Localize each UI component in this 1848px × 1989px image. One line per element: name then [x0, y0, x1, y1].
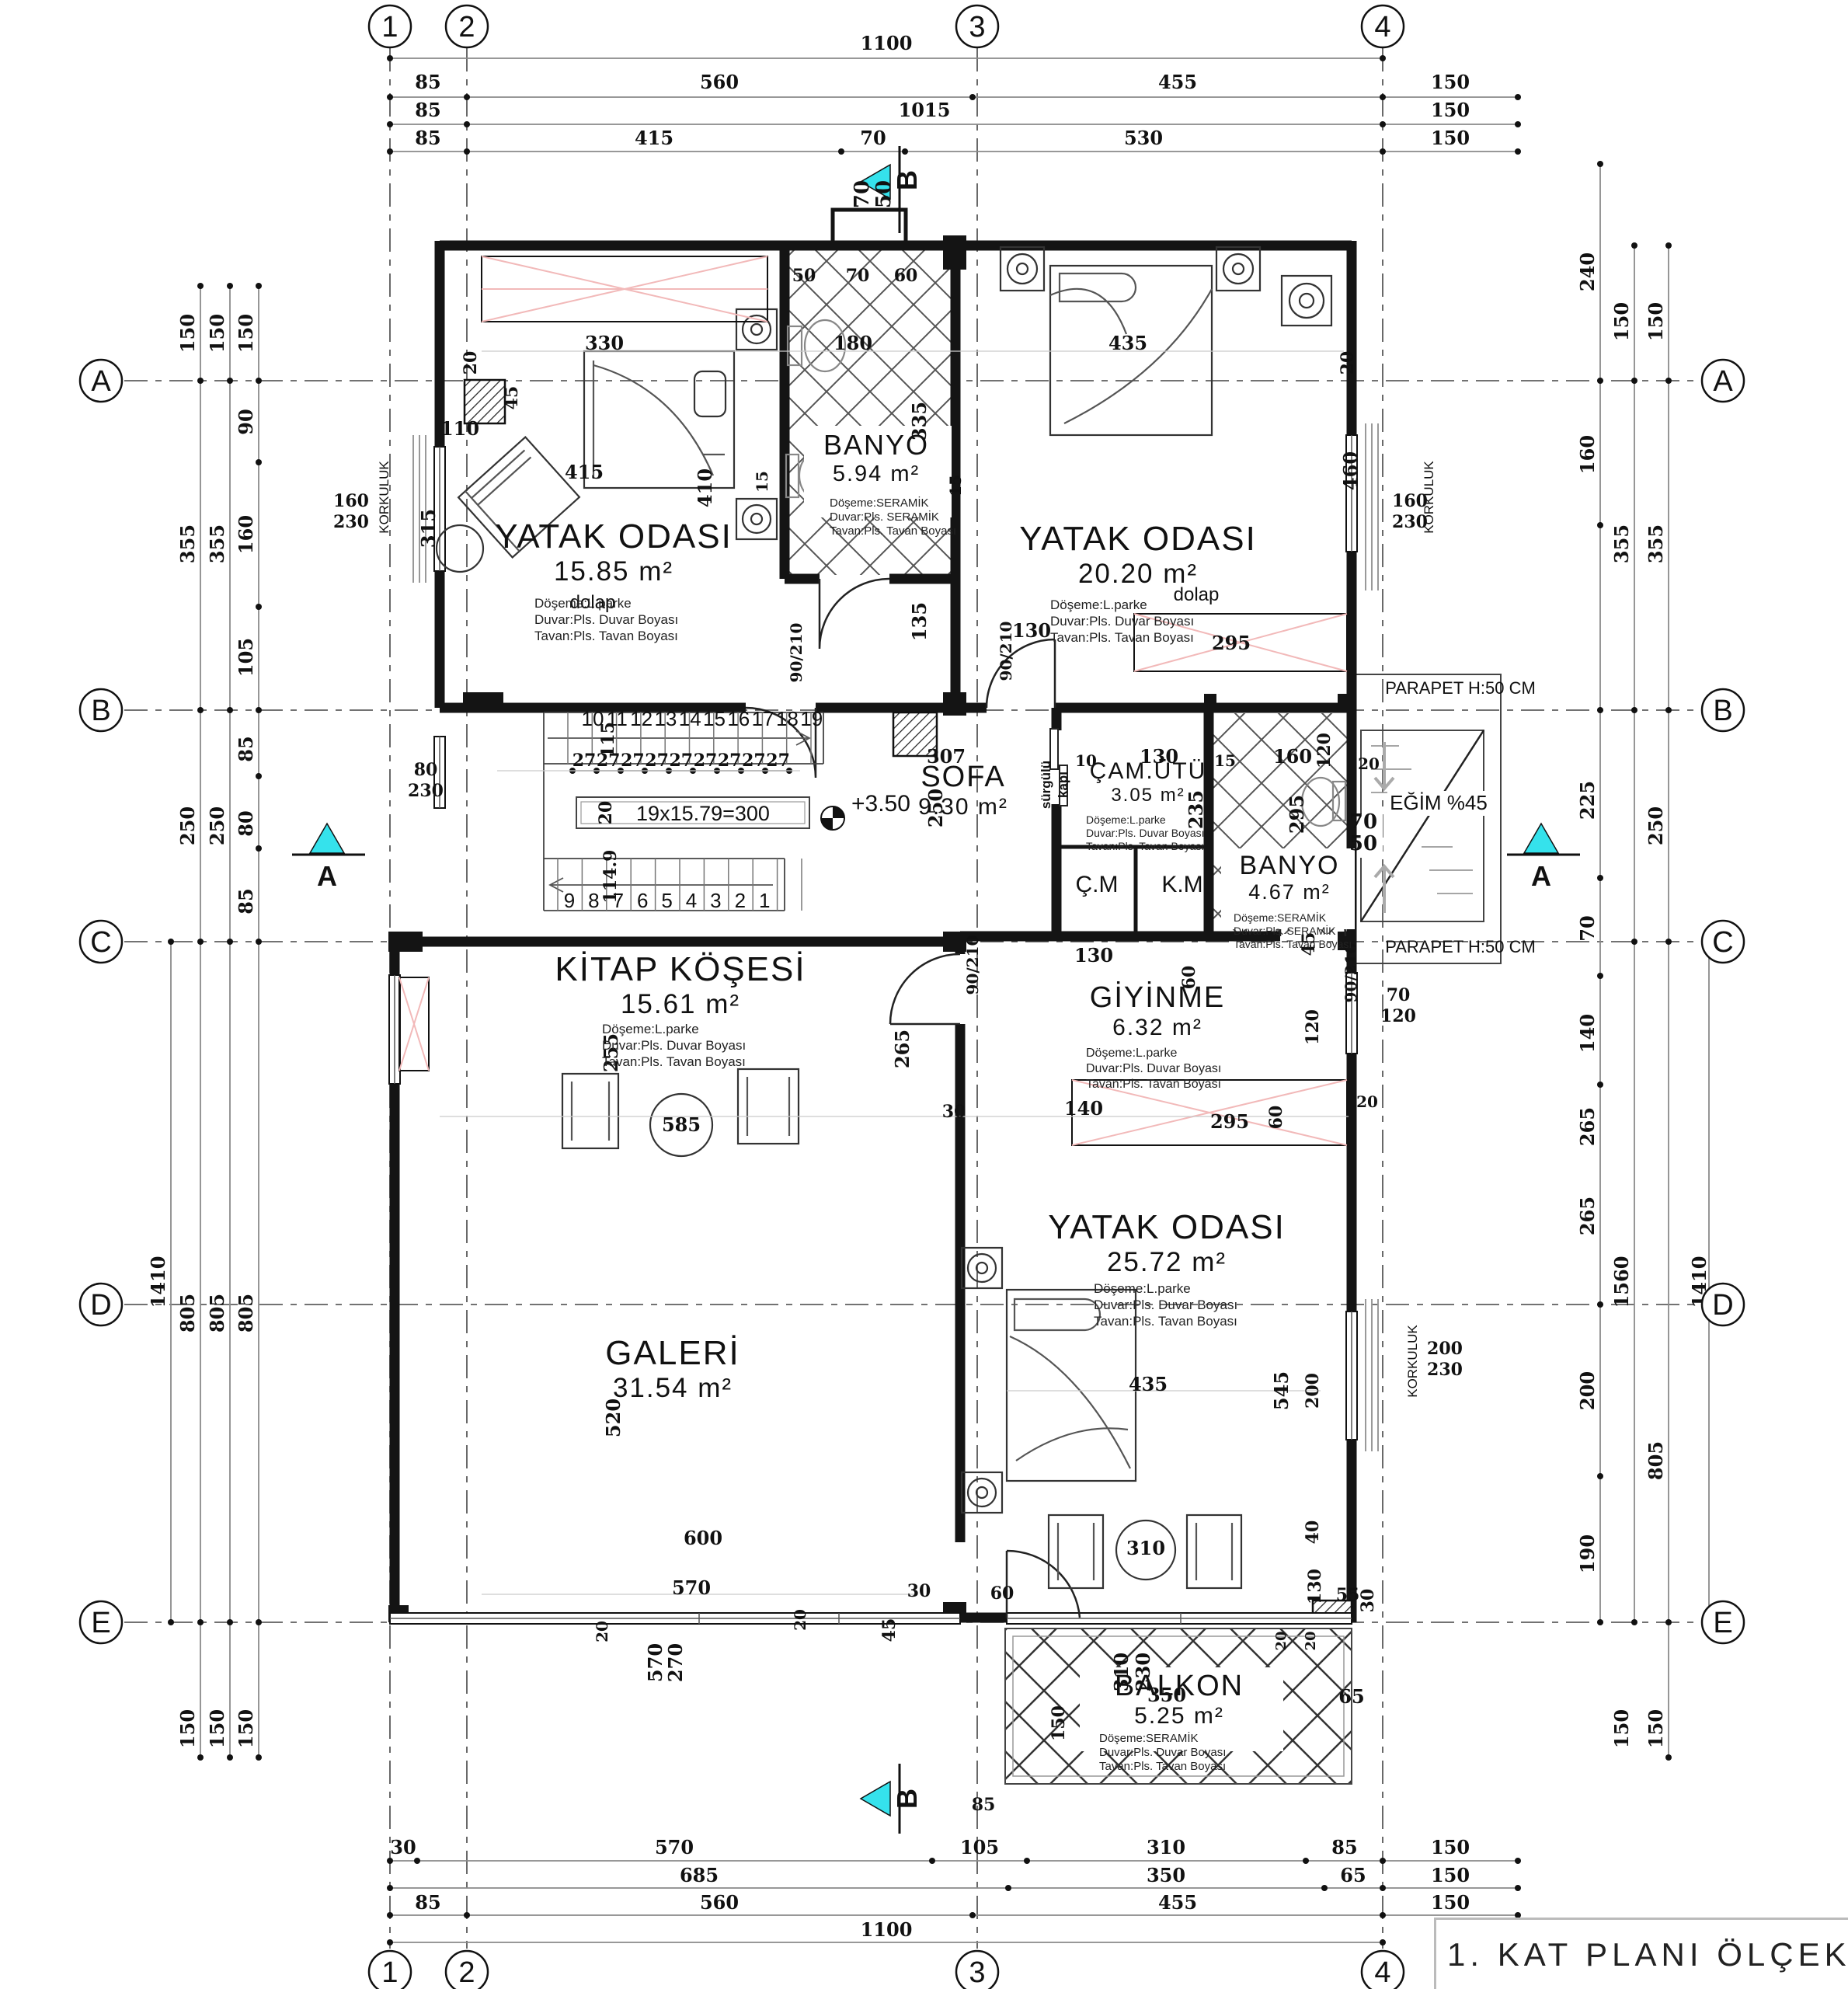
dim-tick [1515, 148, 1521, 155]
dim-label: 20 [1358, 754, 1380, 773]
dim-tick [387, 55, 393, 61]
dim-tick [464, 94, 470, 100]
grid-bubble-label: 1 [381, 11, 398, 44]
dim-label: 85 [415, 127, 440, 149]
stair-step-number: 18 [776, 707, 799, 730]
table-dim: 310 [1126, 1537, 1165, 1559]
dim-label: 150 [1431, 1891, 1470, 1914]
dim-label: 20 [791, 1609, 809, 1631]
armchair [1187, 1515, 1241, 1588]
stair-step-number: 19 [800, 707, 823, 730]
room-notes: Duvar:Pls. Duvar Boyası [1099, 1746, 1226, 1759]
dim-label: 1560 [1610, 1256, 1633, 1308]
dim-tick [168, 1619, 174, 1625]
dim-tick [1631, 378, 1637, 384]
room-area: 25.72 m² [1107, 1247, 1227, 1277]
dim-tick [1380, 55, 1386, 61]
dim-label: 70 [1387, 985, 1411, 1005]
dim-label: 230 [1427, 1360, 1463, 1380]
grid-bubble-label: C [1712, 926, 1733, 959]
dim-label: 315 [417, 509, 440, 548]
dim-tick [197, 1619, 204, 1625]
room-notes: Duvar:Pls. SERAMİK [1234, 924, 1336, 937]
dim-label: 150 [206, 1709, 228, 1748]
stair-tread-dim: 27 [669, 751, 693, 771]
dim-tick [1665, 1754, 1672, 1761]
section-letter-a: A [1531, 860, 1551, 892]
dim-label: 20 [1338, 351, 1358, 375]
stair-step-number: 10 [582, 707, 604, 730]
dim-label: 150 [206, 314, 228, 353]
stair-step-number: 16 [727, 707, 750, 730]
door-kitap [890, 954, 960, 1024]
dim-tick [1303, 1858, 1309, 1864]
dim-tick [1665, 939, 1672, 945]
dim-tick [1005, 1885, 1011, 1891]
dim-label: 15 [946, 475, 965, 496]
room-notes: Döşeme:L.parke [1086, 813, 1166, 826]
dim-tick [256, 1754, 262, 1761]
dim-label: 45 [879, 1618, 900, 1642]
stair-step-number: 8 [588, 889, 599, 912]
dim-tick [1631, 1619, 1637, 1625]
stair-step-number: 2 [735, 889, 746, 912]
dim-tick [387, 1939, 393, 1945]
dim-tick [1665, 242, 1672, 249]
dim-tick [197, 939, 204, 945]
dim-tick [256, 1619, 262, 1625]
stair-step-number: 17 [752, 707, 774, 730]
room-notes: Duvar:Pls. Duvar Boyası [1086, 827, 1205, 839]
stair-tread-dim: 27 [597, 751, 621, 771]
room-notes: Döşeme:L.parke [1086, 1047, 1177, 1060]
dim-tick [464, 1912, 470, 1918]
dim-tick [227, 283, 233, 289]
dim-label: 20 [1356, 1092, 1378, 1111]
room-name: ÇAM.ÜTÜ [1090, 758, 1207, 784]
dim-label: 160 [1273, 745, 1312, 768]
dim-label: 130 [1305, 1569, 1325, 1604]
dim-label: 160 [1576, 435, 1599, 474]
dim-tick [1380, 1858, 1386, 1864]
room-notes: Duvar:Pls. Duvar Boyası [1094, 1298, 1237, 1312]
room-notes: Döşeme:L.parke [1094, 1281, 1191, 1296]
dim-tick [1597, 973, 1603, 979]
stair-tread-dim: 27 [572, 751, 597, 771]
dim-label: 120 [1303, 1009, 1323, 1045]
dim-label: 150 [176, 1709, 199, 1748]
dim-label: 70 [860, 127, 886, 149]
dim-label: 65 [1340, 1864, 1366, 1886]
dim-tick [1380, 94, 1386, 100]
dim-label: 265 [1576, 1107, 1599, 1146]
stair-step-number: 3 [710, 889, 721, 912]
dim-label: 545 [1270, 1371, 1293, 1410]
table-dim: 585 [662, 1113, 701, 1136]
room-notes: Tavan:Pls. Tavan Boyası [1086, 1078, 1221, 1091]
dim-label: 20 [596, 801, 616, 825]
room-name: YATAK ODASI [495, 517, 733, 556]
dim-tick [227, 939, 233, 945]
section-marker-a-left [292, 824, 365, 855]
dim-label: 600 [684, 1527, 722, 1549]
dim-label: 20 [1273, 1631, 1289, 1650]
room-notes: Tavan:Pls. Tavan Boyası [1086, 840, 1204, 852]
dim-label: 30 [1358, 1589, 1378, 1613]
dim-label: 85 [235, 736, 257, 761]
dim-tick [464, 148, 470, 155]
dim-label: 80 [414, 760, 438, 780]
dim-label: 150 [1049, 1705, 1069, 1741]
dim-label: 530 [1124, 127, 1163, 149]
dim-label: 200 [1576, 1371, 1599, 1410]
korkuluk-label: KORKULUK [377, 461, 392, 534]
dim-label: 55 [1336, 1585, 1360, 1605]
dim-label: 250 [1644, 806, 1667, 845]
dim-label: 85 [415, 71, 440, 93]
room-notes: Tavan:Pls. Tavan Boyası [1099, 1760, 1226, 1773]
room-area: 5.25 m² [1134, 1703, 1224, 1729]
dim-label: 235 [1185, 790, 1207, 829]
dim-label: 160 [333, 491, 369, 511]
dim-label: 50 [792, 266, 816, 286]
dim-label: 455 [1158, 71, 1197, 93]
dim-label: 200 [1427, 1339, 1463, 1359]
room-name: KİTAP KÖŞESİ [555, 950, 806, 988]
dim-tick [1665, 707, 1672, 713]
room-name: YATAK ODASI [1048, 1208, 1286, 1246]
grid-bubble-label: 1 [381, 1956, 398, 1989]
dim-tick [1597, 378, 1603, 384]
stair-step-number: 7 [613, 889, 624, 912]
dim-label: 1100 [861, 1918, 913, 1941]
dim-label: 265 [1576, 1197, 1599, 1235]
dim-label: 180 [834, 332, 872, 354]
room-notes: Döşeme:L.parke [602, 1022, 699, 1036]
dim-label: 110 [440, 417, 479, 440]
dim-tick [256, 283, 262, 289]
room-label-cm: Ç.M [1076, 872, 1119, 897]
room-notes: Tavan:Pls. Tavan Boyası [534, 629, 678, 643]
dim-label: 240 [1576, 253, 1599, 291]
dim-label: 85 [415, 99, 440, 121]
dim-label: 685 [680, 1864, 719, 1886]
dim-label: sürgülü [1039, 761, 1053, 809]
room-notes: Döşeme:L.parke [534, 596, 632, 611]
nightstand [1001, 247, 1044, 291]
dim-tick [227, 1754, 233, 1761]
room-name: BALKON [1115, 1670, 1244, 1702]
roof-slope-label: EĞİM %45 [1390, 791, 1488, 814]
room-notes: Duvar:Pls. Duvar Boyası [1050, 614, 1194, 629]
room-area: 9.30 m² [918, 794, 1008, 820]
grid-bubble-label: 3 [969, 1956, 985, 1989]
dim-tick [929, 1858, 935, 1864]
stair-tread-dim: 27 [645, 751, 669, 771]
dim-label: 120 [1380, 1006, 1416, 1026]
room-name: SOFA [921, 761, 1005, 793]
grid-bubble-label: 3 [969, 11, 985, 44]
dim-label: 130 [1012, 619, 1051, 642]
dim-label: 190 [1576, 1534, 1599, 1573]
dim-label: 90/210 [787, 623, 806, 683]
dim-tick [256, 845, 262, 852]
dim-label: 310 [1147, 1836, 1185, 1858]
room-notes: Tavan:Pls. Tavan Boyası [602, 1054, 746, 1069]
dim-tick [1597, 1619, 1603, 1625]
dim-label: 140 [1576, 1014, 1599, 1053]
dim-tick [969, 1912, 976, 1918]
dim-tick [1024, 1858, 1030, 1864]
section-letter-b: B [891, 170, 923, 190]
parapet-label: PARAPET H:50 CM [1385, 678, 1536, 698]
dim-label: 270 [664, 1643, 687, 1682]
door-balcony [1007, 1551, 1080, 1618]
dim-label: 200 [1303, 1373, 1323, 1409]
dim-tick [1515, 1885, 1521, 1891]
section-letter-b: B [891, 1789, 923, 1809]
dim-tick [387, 121, 393, 127]
room-notes: Döşeme:SERAMİK [1234, 911, 1327, 924]
dim-label: 415 [635, 127, 673, 149]
dim-tick [1597, 875, 1603, 881]
room-notes: Döşeme:SERAMİK [1099, 1731, 1199, 1745]
bed [584, 351, 734, 488]
dim-label: 20 [593, 1621, 611, 1642]
dim-label: 355 [206, 524, 228, 563]
korkuluk-label: KORKULUK [1422, 461, 1436, 534]
grid-bubble-label: D [90, 1289, 111, 1322]
stair-step-number: 15 [703, 707, 726, 730]
dim-label: 85 [235, 888, 257, 914]
room-label-km: K.M [1161, 872, 1202, 897]
dim-tick [1380, 1885, 1386, 1891]
dim-tick [1515, 94, 1521, 100]
dim-tick [1515, 1858, 1521, 1864]
stair-step-number: 4 [686, 889, 697, 912]
room-notes: Döşeme:SERAMİK [830, 496, 929, 510]
dim-tick [1631, 242, 1637, 249]
dim-tick [1597, 522, 1603, 528]
grid-bubble-label: A [1713, 365, 1733, 398]
dim-label: 330 [585, 332, 624, 354]
dim-tick [414, 1858, 420, 1864]
dim-label: 805 [1644, 1441, 1667, 1480]
dim-label: 130 [1074, 944, 1113, 967]
dim-label: 70 [1576, 915, 1599, 941]
dim-tick [1380, 148, 1386, 155]
dim-label: 250 [176, 806, 199, 845]
dim-label: 570 [644, 1643, 666, 1682]
dim-label: 85 [1331, 1836, 1357, 1858]
room-notes: Tavan:Pls. Tavan Boyası [830, 524, 956, 538]
dim-label: 85 [415, 1891, 440, 1914]
korkuluk-label: KORKULUK [1405, 1325, 1420, 1398]
room-notes: Tavan:Pls. Tavan Boyası [1234, 938, 1352, 950]
dim-tick [1380, 1912, 1386, 1918]
dim-tick [168, 939, 174, 945]
stair-step-number: 6 [637, 889, 648, 912]
grid-bubble-label: B [91, 695, 110, 727]
dim-tick [1597, 161, 1603, 167]
level-marker [821, 806, 844, 830]
dim-label: 295 [1210, 1110, 1249, 1133]
nightstand [1216, 247, 1260, 291]
dim-label: 520 [602, 1399, 625, 1437]
stair-step-number: 5 [661, 889, 672, 912]
dim-label: 70 [846, 266, 870, 286]
dim-label: 1100 [861, 32, 913, 54]
dim-label: 295 [1212, 632, 1251, 654]
dim-label: 140 [1064, 1097, 1103, 1120]
room-area: 15.61 m² [621, 989, 740, 1019]
room-notes: Tavan:Pls. Tavan Boyası [1094, 1314, 1237, 1329]
dim-tick [197, 378, 204, 384]
dim-tick [902, 148, 908, 155]
dim-label: 150 [176, 314, 199, 353]
stair-tread-dim: 27 [766, 751, 790, 771]
dim-tick [256, 773, 262, 779]
dim-label: 1410 [147, 1256, 169, 1308]
dim-label: 265 [891, 1029, 914, 1068]
stair-step-number: 13 [654, 707, 677, 730]
dim-label: 90/210 [1342, 943, 1360, 1003]
dim-label: 80 [235, 810, 257, 836]
room-area: 6.32 m² [1112, 1015, 1202, 1040]
dim-label: 105 [235, 638, 257, 677]
dim-label: 150 [1431, 71, 1470, 93]
dim-tick [197, 1754, 204, 1761]
dim-tick [1380, 121, 1386, 127]
room-area: 31.54 m² [613, 1373, 733, 1403]
grid-bubble-label: D [1712, 1289, 1733, 1322]
dim-label: 60 [894, 266, 918, 286]
room-name: GALERİ [605, 1334, 740, 1372]
dim-label: 150 [235, 314, 257, 353]
dim-label: +3.50 [851, 791, 910, 817]
nightstand [736, 499, 777, 539]
dim-label: 40 [1303, 1520, 1323, 1545]
dim-tick [387, 94, 393, 100]
grid-bubble-label: 4 [1374, 11, 1390, 44]
door-bath1 [820, 579, 889, 649]
dim-label: 455 [1158, 1891, 1197, 1914]
dim-tick [256, 378, 262, 384]
dim-label: 85 [972, 1795, 996, 1815]
dim-tick [1597, 1301, 1603, 1308]
dim-label: 415 [565, 461, 604, 483]
dim-label: 355 [1644, 524, 1667, 563]
dim-label: 570 [655, 1836, 694, 1858]
dim-label: 120 [1314, 733, 1335, 768]
dim-tick [464, 121, 470, 127]
dim-label: 20 [461, 351, 481, 375]
grid-bubble-label: E [1713, 1607, 1732, 1639]
dim-label: 805 [235, 1294, 257, 1332]
stair-step-number: 11 [607, 707, 628, 730]
dim-label: 150 [1644, 302, 1667, 341]
stair-step-number: 9 [564, 889, 575, 912]
dim-label: 20 [1303, 1631, 1319, 1650]
dim-label: 1015 [899, 99, 951, 121]
dim-label: 150 [1610, 302, 1633, 341]
dim-tick [256, 459, 262, 465]
dim-tick [1597, 707, 1603, 713]
dim-tick [256, 604, 262, 610]
armchair [738, 1069, 799, 1144]
dim-label: 355 [176, 524, 199, 563]
dim-label: 250 [206, 806, 228, 845]
dim-label: 570 [672, 1576, 711, 1599]
dim-tick [1597, 1473, 1603, 1479]
room-notes: Duvar:Pls. Duvar Boyası [534, 612, 678, 627]
dim-label: 150 [235, 1709, 257, 1748]
stair-step-number: 1 [759, 889, 770, 912]
dim-tick [227, 378, 233, 384]
dim-label: 90/210 [963, 935, 982, 995]
dim-tick [969, 94, 976, 100]
dim-label: 435 [1108, 332, 1147, 354]
dim-label: 805 [206, 1294, 228, 1332]
dim-label: kapı [1056, 772, 1070, 798]
dim-label: 435 [1129, 1373, 1168, 1395]
dim-label: 70 [1349, 810, 1377, 834]
grid-bubble-label: E [91, 1607, 110, 1639]
dim-label: 150 [1644, 1709, 1667, 1748]
dim-tick [387, 1912, 393, 1918]
room-notes: Duvar:Pls. Duvar Boyası [602, 1038, 746, 1053]
room-notes: Tavan:Pls. Tavan Boyası [1050, 630, 1194, 645]
dim-label: 150 [1431, 99, 1470, 121]
dim-tick [1631, 707, 1637, 713]
dim-label: 30 [907, 1581, 931, 1601]
section-marker-a-right [1507, 824, 1580, 855]
dim-label: 30 [390, 1836, 416, 1858]
dim-label: 560 [700, 71, 739, 93]
dim-label: 230 [333, 512, 369, 532]
armchair [1049, 1515, 1103, 1588]
dim-label: 805 [176, 1294, 199, 1332]
nightstand [962, 1248, 1002, 1288]
dim-label: 90 [235, 409, 257, 434]
dim-tick [1665, 378, 1672, 384]
armchair [562, 1074, 618, 1148]
room-notes: Duvar:Pls. Duvar Boyası [1086, 1062, 1221, 1075]
room-area: 3.05 m² [1111, 785, 1185, 806]
grid-bubble-label: C [90, 926, 111, 959]
dim-tick [838, 148, 844, 155]
grid-bubble-label: 2 [458, 1956, 475, 1989]
dim-tick [387, 148, 393, 155]
room-notes: Duvar:Pls. SERAMİK [830, 510, 939, 524]
dim-label: 50 [1349, 832, 1377, 855]
room-area: 5.94 m² [833, 462, 920, 486]
dim-label: 295 [1286, 795, 1308, 834]
dim-label: 150 [1610, 1709, 1633, 1748]
stair-tread-dim: 27 [718, 751, 742, 771]
grid-bubble-label: 4 [1374, 1956, 1390, 1989]
grid-bubble-label: 2 [458, 11, 475, 44]
dim-label: 45 [502, 386, 522, 410]
stair-step-number: 14 [679, 707, 701, 730]
stair-tread-dim: 27 [742, 751, 766, 771]
dim-tick [1597, 1082, 1603, 1088]
dim-label: 15 [753, 471, 771, 493]
dim-label: 560 [700, 1891, 739, 1914]
parapet-label: PARAPET H:50 CM [1385, 937, 1536, 956]
dim-tick [256, 707, 262, 713]
room-area: 4.67 m² [1248, 880, 1331, 904]
